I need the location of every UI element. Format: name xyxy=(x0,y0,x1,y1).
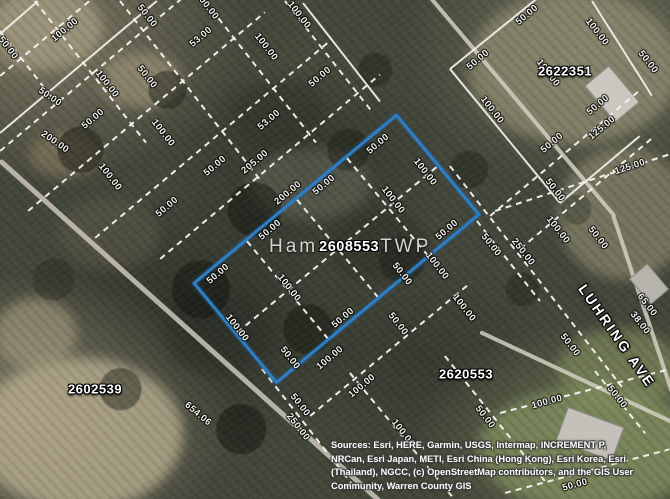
township-label: Ham 2608553 TWP xyxy=(269,236,431,258)
attribution-line: (Thailand), NGCC, (c) OpenStreetMap cont… xyxy=(331,466,668,480)
parcel-number-label[interactable]: 2620553 xyxy=(439,367,493,382)
attribution-line: Sources: Esri, HERE, Garmin, USGS, Inter… xyxy=(331,439,668,453)
parcel-number-label[interactable]: 2602539 xyxy=(68,382,122,397)
attribution-text: Sources: Esri, HERE, Garmin, USGS, Inter… xyxy=(331,439,668,494)
attribution-line: Community, Warren County GIS xyxy=(331,480,668,494)
selected-parcel-number-label[interactable]: 2608553 xyxy=(319,239,379,255)
township-prefix: Ham xyxy=(269,236,318,258)
map-canvas[interactable]: 100.0050.00100.00100.0053.00100.0050.005… xyxy=(0,0,670,499)
attribution-line: NRCan, Esri Japan, METI, Esri China (Hon… xyxy=(331,453,668,467)
parcel-number-label[interactable]: 2622351 xyxy=(538,64,592,79)
township-suffix: TWP xyxy=(380,236,431,258)
